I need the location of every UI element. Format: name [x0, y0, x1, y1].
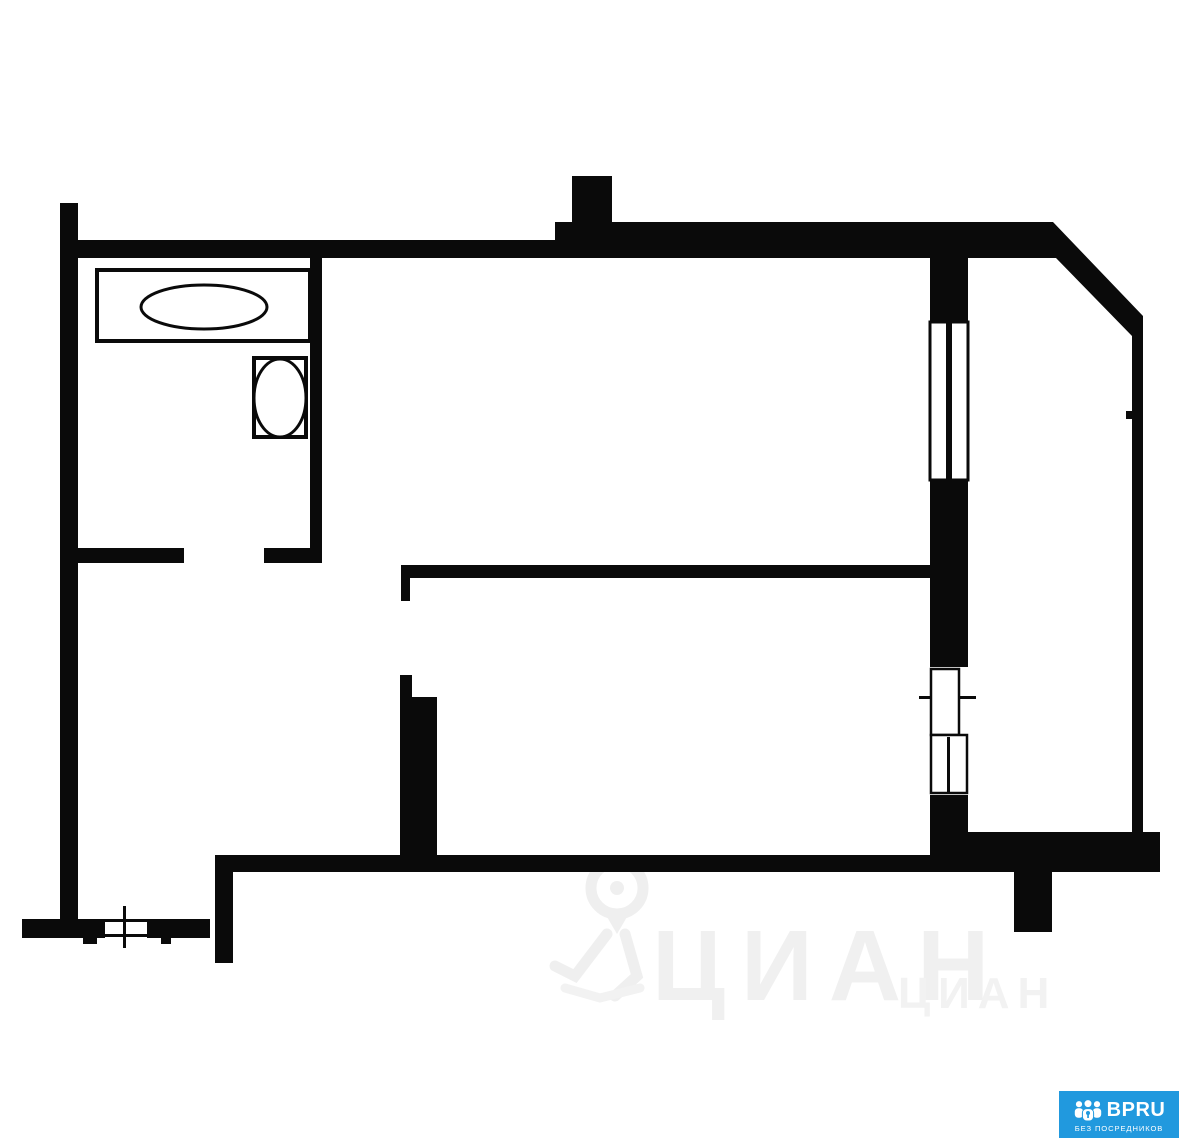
window-left-tick-a [83, 936, 97, 944]
wall-window-column-mid [930, 480, 968, 667]
wall-bottom-main [217, 855, 968, 872]
wall-right [1132, 316, 1143, 832]
wall-bottom-right [968, 832, 1160, 872]
wall-window-column-top [930, 258, 968, 322]
wall-bottom-left-a [22, 919, 105, 938]
floorplan-canvas: ЦИАН ЦИАН BPRU БЕЗ ПОСРЕДНИКОВ [0, 0, 1179, 1144]
balcony-door-upper [931, 669, 959, 735]
balcony-door-mullion [947, 737, 950, 793]
window-left-tick-b [161, 936, 171, 944]
wall-bathroom-bottom-left [75, 548, 184, 563]
wall-bottom-protrusion [1014, 872, 1052, 932]
wall-top-right [555, 222, 1053, 258]
bathtub-basin [141, 285, 267, 329]
window-upper-mullion [946, 322, 952, 480]
window-left-cross [123, 906, 126, 948]
wall-mid-horizontal [401, 565, 935, 578]
floorplan-svg [0, 0, 1179, 1144]
wall-bottom-left-b [147, 919, 210, 938]
wall-bottom-left-vertical [215, 855, 233, 963]
wall-mid-stub [401, 565, 410, 601]
wall-central-wide [400, 697, 437, 857]
wall-right-tick [1126, 411, 1132, 419]
brand-name: BPRU [1107, 1100, 1166, 1120]
wall-bathroom-bottom-right [264, 548, 322, 563]
brand-tagline: БЕЗ ПОСРЕДНИКОВ [1075, 1124, 1163, 1133]
brand-badge: BPRU БЕЗ ПОСРЕДНИКОВ [1059, 1091, 1179, 1138]
wall-top-left [77, 240, 555, 258]
people-group-icon [1073, 1099, 1103, 1122]
wall-pilaster [572, 176, 612, 222]
brand-badge-row: BPRU [1073, 1099, 1166, 1122]
washbasin-bowl [254, 359, 306, 437]
wall-window-column-bottom [930, 795, 968, 855]
wall-corner-diagonal [1053, 222, 1143, 336]
